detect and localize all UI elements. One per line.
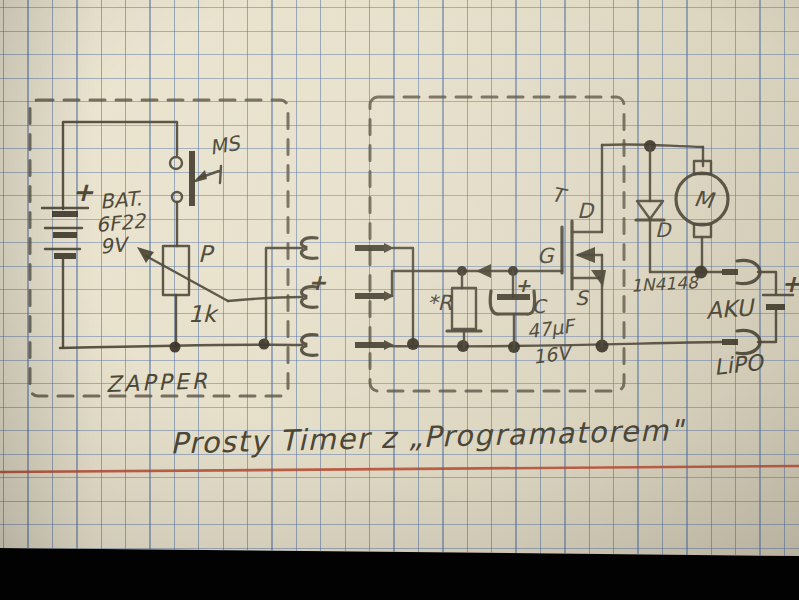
battery-6f22: + BAT. 6F22 9V	[42, 122, 177, 347]
mosfet-drain-label: D	[577, 199, 595, 223]
pot-value-label: 1k	[188, 301, 220, 327]
zapper-bottom-rail	[60, 248, 302, 353]
motor-label: M	[692, 186, 716, 214]
battery-voltage-label: 9V	[99, 232, 132, 259]
switch-label: MS	[208, 130, 244, 159]
potentiometer-p: P 1k	[137, 202, 302, 347]
red-margin-line	[0, 466, 799, 472]
zapper-box-label: ZAPPER	[106, 368, 211, 397]
cap-value-label: 47µF	[526, 314, 579, 342]
resistor-label: *R	[427, 291, 454, 315]
battery-plus-label: +	[72, 177, 94, 207]
mosfet-label: T	[549, 182, 570, 209]
photo-of-schematic: + BAT. 6F22 9V MS P 1k	[0, 0, 799, 600]
diode-label: D	[655, 218, 672, 242]
pot-label: P	[198, 241, 215, 267]
aku-plus-label: +	[781, 270, 799, 298]
schematic-drawing: + BAT. 6F22 9V MS P 1k	[0, 0, 799, 600]
aku-label: AKU	[705, 294, 757, 323]
capacitor-c: + C 47µF 16V	[490, 271, 578, 368]
diode-part-label: 1N4148	[630, 272, 700, 296]
cap-voltage-label: 16V	[532, 341, 576, 368]
motor-m: M	[676, 147, 728, 272]
mosfet-source-label: S	[575, 286, 590, 310]
page-title: Prosty Timer z „Programatorem"	[170, 413, 686, 460]
switch-ms: MS	[170, 130, 244, 206]
cap-label: C	[532, 295, 548, 317]
cap-plus-label: +	[515, 274, 531, 296]
resistor-r: *R	[427, 271, 481, 347]
connector-plus-label: +	[308, 270, 327, 295]
aku-type-label: LiPO	[713, 350, 767, 380]
mosfet-gate-label: G	[537, 244, 555, 268]
top-rail	[602, 140, 703, 152]
zapper-output-connectors: +	[301, 238, 327, 356]
